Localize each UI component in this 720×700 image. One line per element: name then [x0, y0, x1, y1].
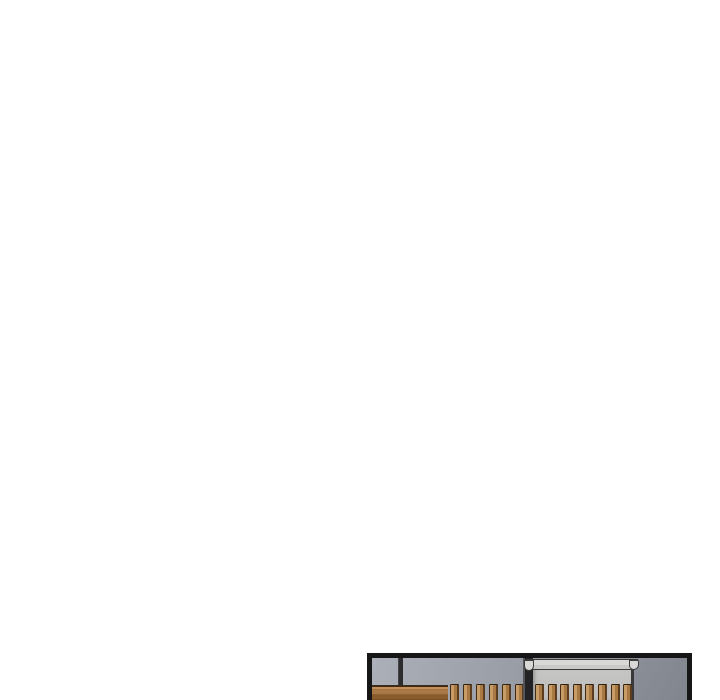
fence-slat	[560, 684, 569, 700]
fence-slat	[463, 684, 472, 700]
fence-slat	[489, 684, 498, 700]
cornice-left-curl	[524, 660, 534, 671]
fence-slat	[573, 684, 582, 700]
fence-slat	[598, 684, 607, 700]
fence-slat	[611, 684, 620, 700]
fence-slat	[476, 684, 485, 700]
fence-slat	[548, 684, 557, 700]
fence-slat	[502, 684, 511, 700]
fence-slat	[535, 684, 544, 700]
fence-slat	[623, 684, 632, 700]
fence-slat	[450, 684, 459, 700]
page-background	[0, 0, 720, 700]
fence-slat	[585, 684, 594, 700]
comic-panel	[367, 653, 692, 700]
cabinet-cornice-lip	[531, 665, 632, 670]
